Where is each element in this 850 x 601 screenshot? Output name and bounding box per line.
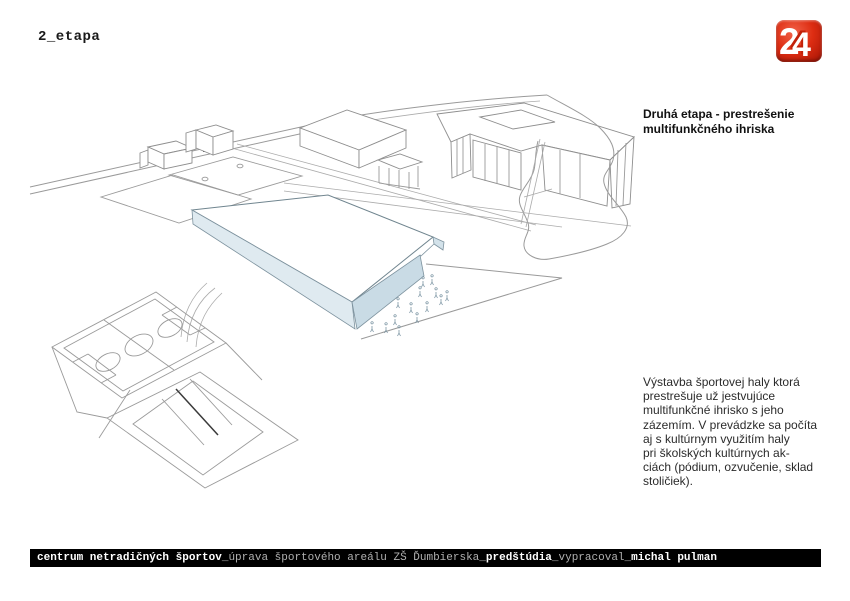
- footer-title-bar: centrum netradičných športov_úprava špor…: [30, 549, 821, 567]
- footer-segment-project: centrum netradičných športov: [37, 552, 222, 564]
- page-title: 2_etapa: [38, 29, 100, 45]
- logo-digit-4: 4: [792, 28, 811, 62]
- footer-segment-subtitle: _úprava športového areálu ZŠ Ďumbierska_: [222, 552, 486, 564]
- logo-24: 2 4: [776, 20, 822, 62]
- slab-building: [300, 110, 422, 189]
- small-buildings: [140, 125, 233, 169]
- annotation-heading: Druhá etapa - prestrešenie multifunkčnéh…: [643, 107, 843, 136]
- hall-roof-overhang: [433, 237, 444, 250]
- footer-segment-phase: predštúdia: [486, 552, 552, 564]
- sports-hall-highlight: [192, 195, 444, 329]
- presentation-sheet: 2_etapa 2 4 Druhá etapa - prestrešenie m…: [0, 0, 850, 601]
- annotation-body: Výstavba športovej haly ktorá prestrešuj…: [643, 375, 848, 489]
- site-axonometric-drawing: [0, 0, 850, 601]
- basketball-court: [52, 292, 226, 398]
- footer-segment-vypracoval: _vypracoval_: [552, 552, 631, 564]
- footer-segment-author: michal pulman: [631, 552, 717, 564]
- volleyball-court: [52, 343, 298, 488]
